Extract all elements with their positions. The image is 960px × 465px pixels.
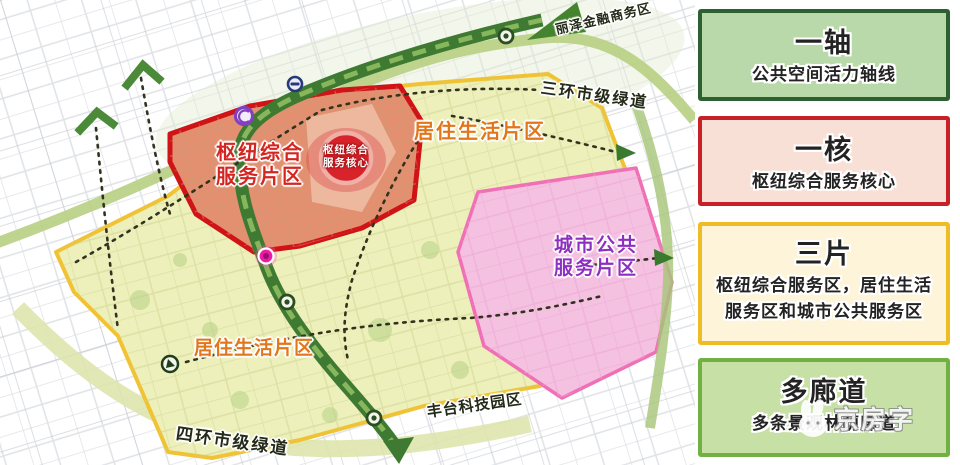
hub-core-label-line2: 服务核心 bbox=[313, 157, 379, 170]
legend-item-axis: 一轴 公共空间活力轴线 bbox=[698, 9, 950, 101]
residential-north-label: 居住生活片区 bbox=[414, 119, 546, 143]
hub-zone-label-line2: 服务片区 bbox=[202, 164, 318, 188]
public-zone-label-line2: 服务片区 bbox=[540, 257, 652, 280]
circled-arrow-node-icon bbox=[162, 356, 178, 372]
legend-title-districts: 三片 bbox=[702, 226, 946, 271]
public-zone-label-line1: 城市公共 bbox=[540, 234, 652, 257]
legend-item-districts: 三片 枢纽综合服务区，居住生活服务区和城市公共服务区 bbox=[698, 222, 950, 345]
hub-core-label-line1: 枢纽综合 bbox=[313, 144, 379, 157]
watermark-text: 京房字 bbox=[834, 400, 915, 436]
map-area: 枢纽综合 服务片区 枢纽综合 服务核心 居住生活片区 城市公共 服务片区 居住生… bbox=[0, 0, 695, 465]
public-service-zone-label: 城市公共 服务片区 bbox=[540, 234, 652, 280]
watermark: 京房字 bbox=[788, 398, 915, 438]
legend-title-core: 一核 bbox=[702, 120, 946, 167]
hub-zone-label: 枢纽综合 服务片区 bbox=[202, 140, 318, 189]
hub-zone-label-line1: 枢纽综合 bbox=[202, 140, 318, 164]
legend-desc-axis: 公共空间活力轴线 bbox=[715, 62, 933, 88]
railway-station-icon bbox=[288, 77, 302, 91]
residential-south-label: 居住生活片区 bbox=[194, 337, 314, 360]
planning-map-screenshot: 枢纽综合 服务片区 枢纽综合 服务核心 居住生活片区 城市公共 服务片区 居住生… bbox=[0, 0, 960, 465]
map-canvas bbox=[0, 0, 695, 465]
target-node-icon bbox=[280, 295, 294, 309]
hub-core-label: 枢纽综合 服务核心 bbox=[313, 144, 379, 170]
interchange-node-icon bbox=[255, 245, 277, 267]
rabbit-logo-icon bbox=[788, 398, 832, 438]
target-node-icon bbox=[499, 29, 513, 43]
target-node-icon bbox=[367, 411, 381, 425]
legend-desc-core: 枢纽综合服务核心 bbox=[715, 169, 933, 195]
legend-title-axis: 一轴 bbox=[702, 13, 946, 60]
legend-item-core: 一核 枢纽综合服务核心 bbox=[698, 116, 950, 206]
legend-desc-districts: 枢纽综合服务区，居住生活服务区和城市公共服务区 bbox=[715, 273, 933, 326]
metro-station-icon bbox=[236, 108, 253, 125]
